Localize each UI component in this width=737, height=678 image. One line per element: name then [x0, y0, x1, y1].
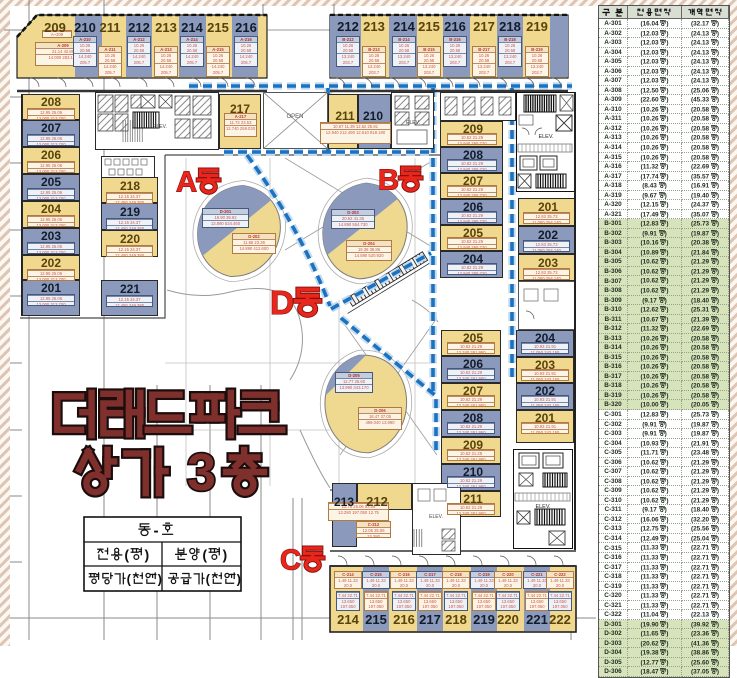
- svg-text:C: C: [280, 544, 301, 576]
- svg-text:(: (: [124, 547, 129, 563]
- svg-text:): ): [237, 571, 241, 586]
- svg-text:A: A: [176, 166, 197, 198]
- svg-text:(: (: [202, 547, 207, 563]
- svg-text:): ): [145, 547, 150, 563]
- svg-text:): ): [223, 547, 228, 563]
- svg-text:(: (: [127, 571, 132, 586]
- svg-text:D: D: [270, 285, 294, 322]
- svg-text:3: 3: [187, 444, 216, 502]
- svg-text:): ): [158, 571, 162, 586]
- svg-text:-: -: [154, 522, 159, 539]
- svg-text:B: B: [378, 164, 399, 196]
- svg-text:(: (: [206, 571, 211, 586]
